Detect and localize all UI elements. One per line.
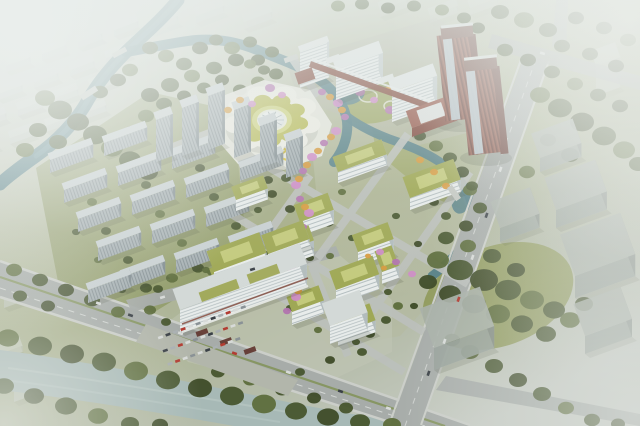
rendering-canvas: Bird's-eye masterplan rendering of a riv… [0, 0, 640, 426]
mist-overlays [0, 0, 640, 426]
aerial-rendering [0, 0, 640, 426]
mist-bottomleft [0, 0, 640, 426]
